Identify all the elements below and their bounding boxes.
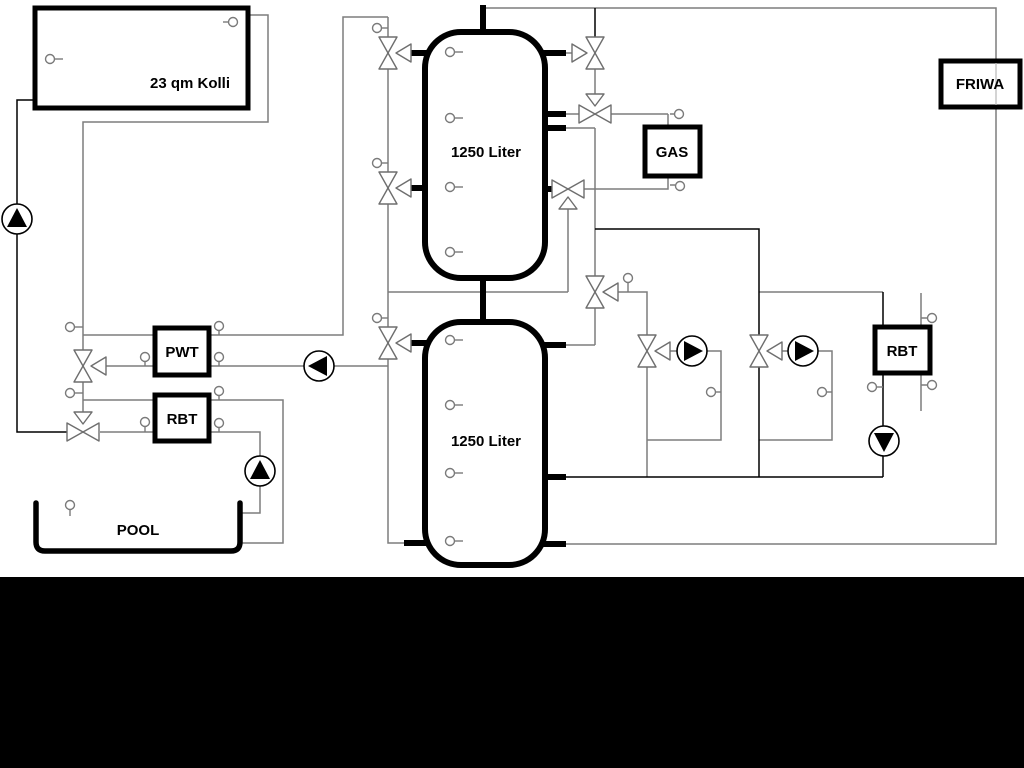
temp-sensor-rbt-right-2	[928, 381, 937, 390]
pump-pool	[245, 456, 275, 486]
pwt-label: PWT	[165, 344, 198, 361]
temp-sensor-gas-return	[676, 182, 685, 191]
temp-sensor-gas-supply	[675, 110, 684, 119]
pump-heating-circuit-2	[788, 336, 818, 366]
pool-label: POOL	[117, 522, 160, 539]
pump-rbt-right	[869, 426, 899, 456]
schematic-page: 23 qm Kolli 1250 Liter 1250 Liter PWT RB…	[0, 0, 1024, 768]
temp-sensor-rbt-right-1	[928, 314, 937, 323]
hydraulic-schematic-canvas: 23 qm Kolli 1250 Liter 1250 Liter PWT RB…	[0, 0, 1024, 768]
rbt-right-label: RBT	[887, 343, 918, 360]
pump-pwt	[304, 351, 334, 381]
pump-solar	[2, 204, 32, 234]
bottom-black-band	[0, 577, 1024, 768]
collector-label: 23 qm Kolli	[150, 75, 230, 92]
friwa-label: FRIWA	[956, 76, 1004, 93]
solar-collector-box	[35, 8, 248, 108]
gas-label: GAS	[656, 144, 689, 161]
rbt-left-label: RBT	[167, 411, 198, 428]
tank-top-label: 1250 Liter	[451, 144, 521, 161]
tank-bottom-label: 1250 Liter	[451, 433, 521, 450]
pump-heating-circuit-1	[677, 336, 707, 366]
